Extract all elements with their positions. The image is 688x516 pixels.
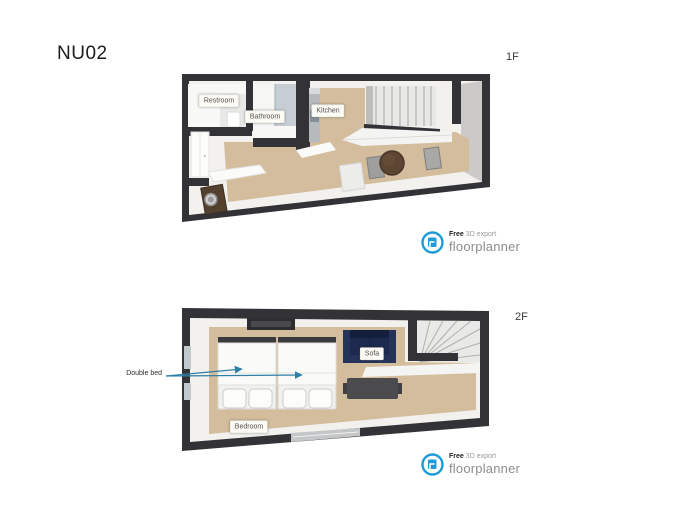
- coffee-table: [343, 378, 402, 399]
- double-bed-arrows: [165, 360, 307, 382]
- side-table: [339, 163, 364, 192]
- badge-brand-text: floorplanner: [449, 240, 520, 254]
- floorplanner-icon: [421, 231, 444, 254]
- restroom-label: Restroom: [199, 94, 239, 107]
- badge-free-export-text: Free3D export: [449, 231, 520, 239]
- arrow-to-bed-2: [166, 375, 302, 376]
- sofa-label: Sofa: [360, 347, 384, 360]
- restroom-room: [185, 81, 253, 136]
- bedroom-label: Bedroom: [230, 420, 268, 433]
- badge-brand-text: floorplanner: [449, 462, 520, 476]
- left-window-slit-2: [184, 383, 191, 400]
- floor-1-label: 1F: [506, 51, 519, 63]
- badge-free-export-text: Free3D export: [449, 453, 520, 461]
- floorplanner-badge: Free3D export floorplanner: [421, 231, 520, 254]
- wall-vent: [247, 318, 295, 330]
- floorplan-sheet: { "title": "NU02", "floor1": { "label": …: [0, 0, 688, 516]
- kitchen-label: Kitchen: [311, 104, 344, 117]
- bathroom-label: Bathroom: [245, 110, 285, 123]
- floorplanner-badge: Free3D export floorplanner: [421, 453, 520, 476]
- floorplanner-icon: [421, 453, 444, 476]
- lower-left-wall: [182, 178, 209, 186]
- double-bed-annotation: Double bed: [105, 370, 162, 377]
- dining-chair-right: [424, 147, 442, 170]
- floor-2-label: 2F: [515, 311, 528, 323]
- page-title: NU02: [57, 43, 108, 65]
- washing-machine: [201, 184, 227, 214]
- closet: [191, 132, 209, 177]
